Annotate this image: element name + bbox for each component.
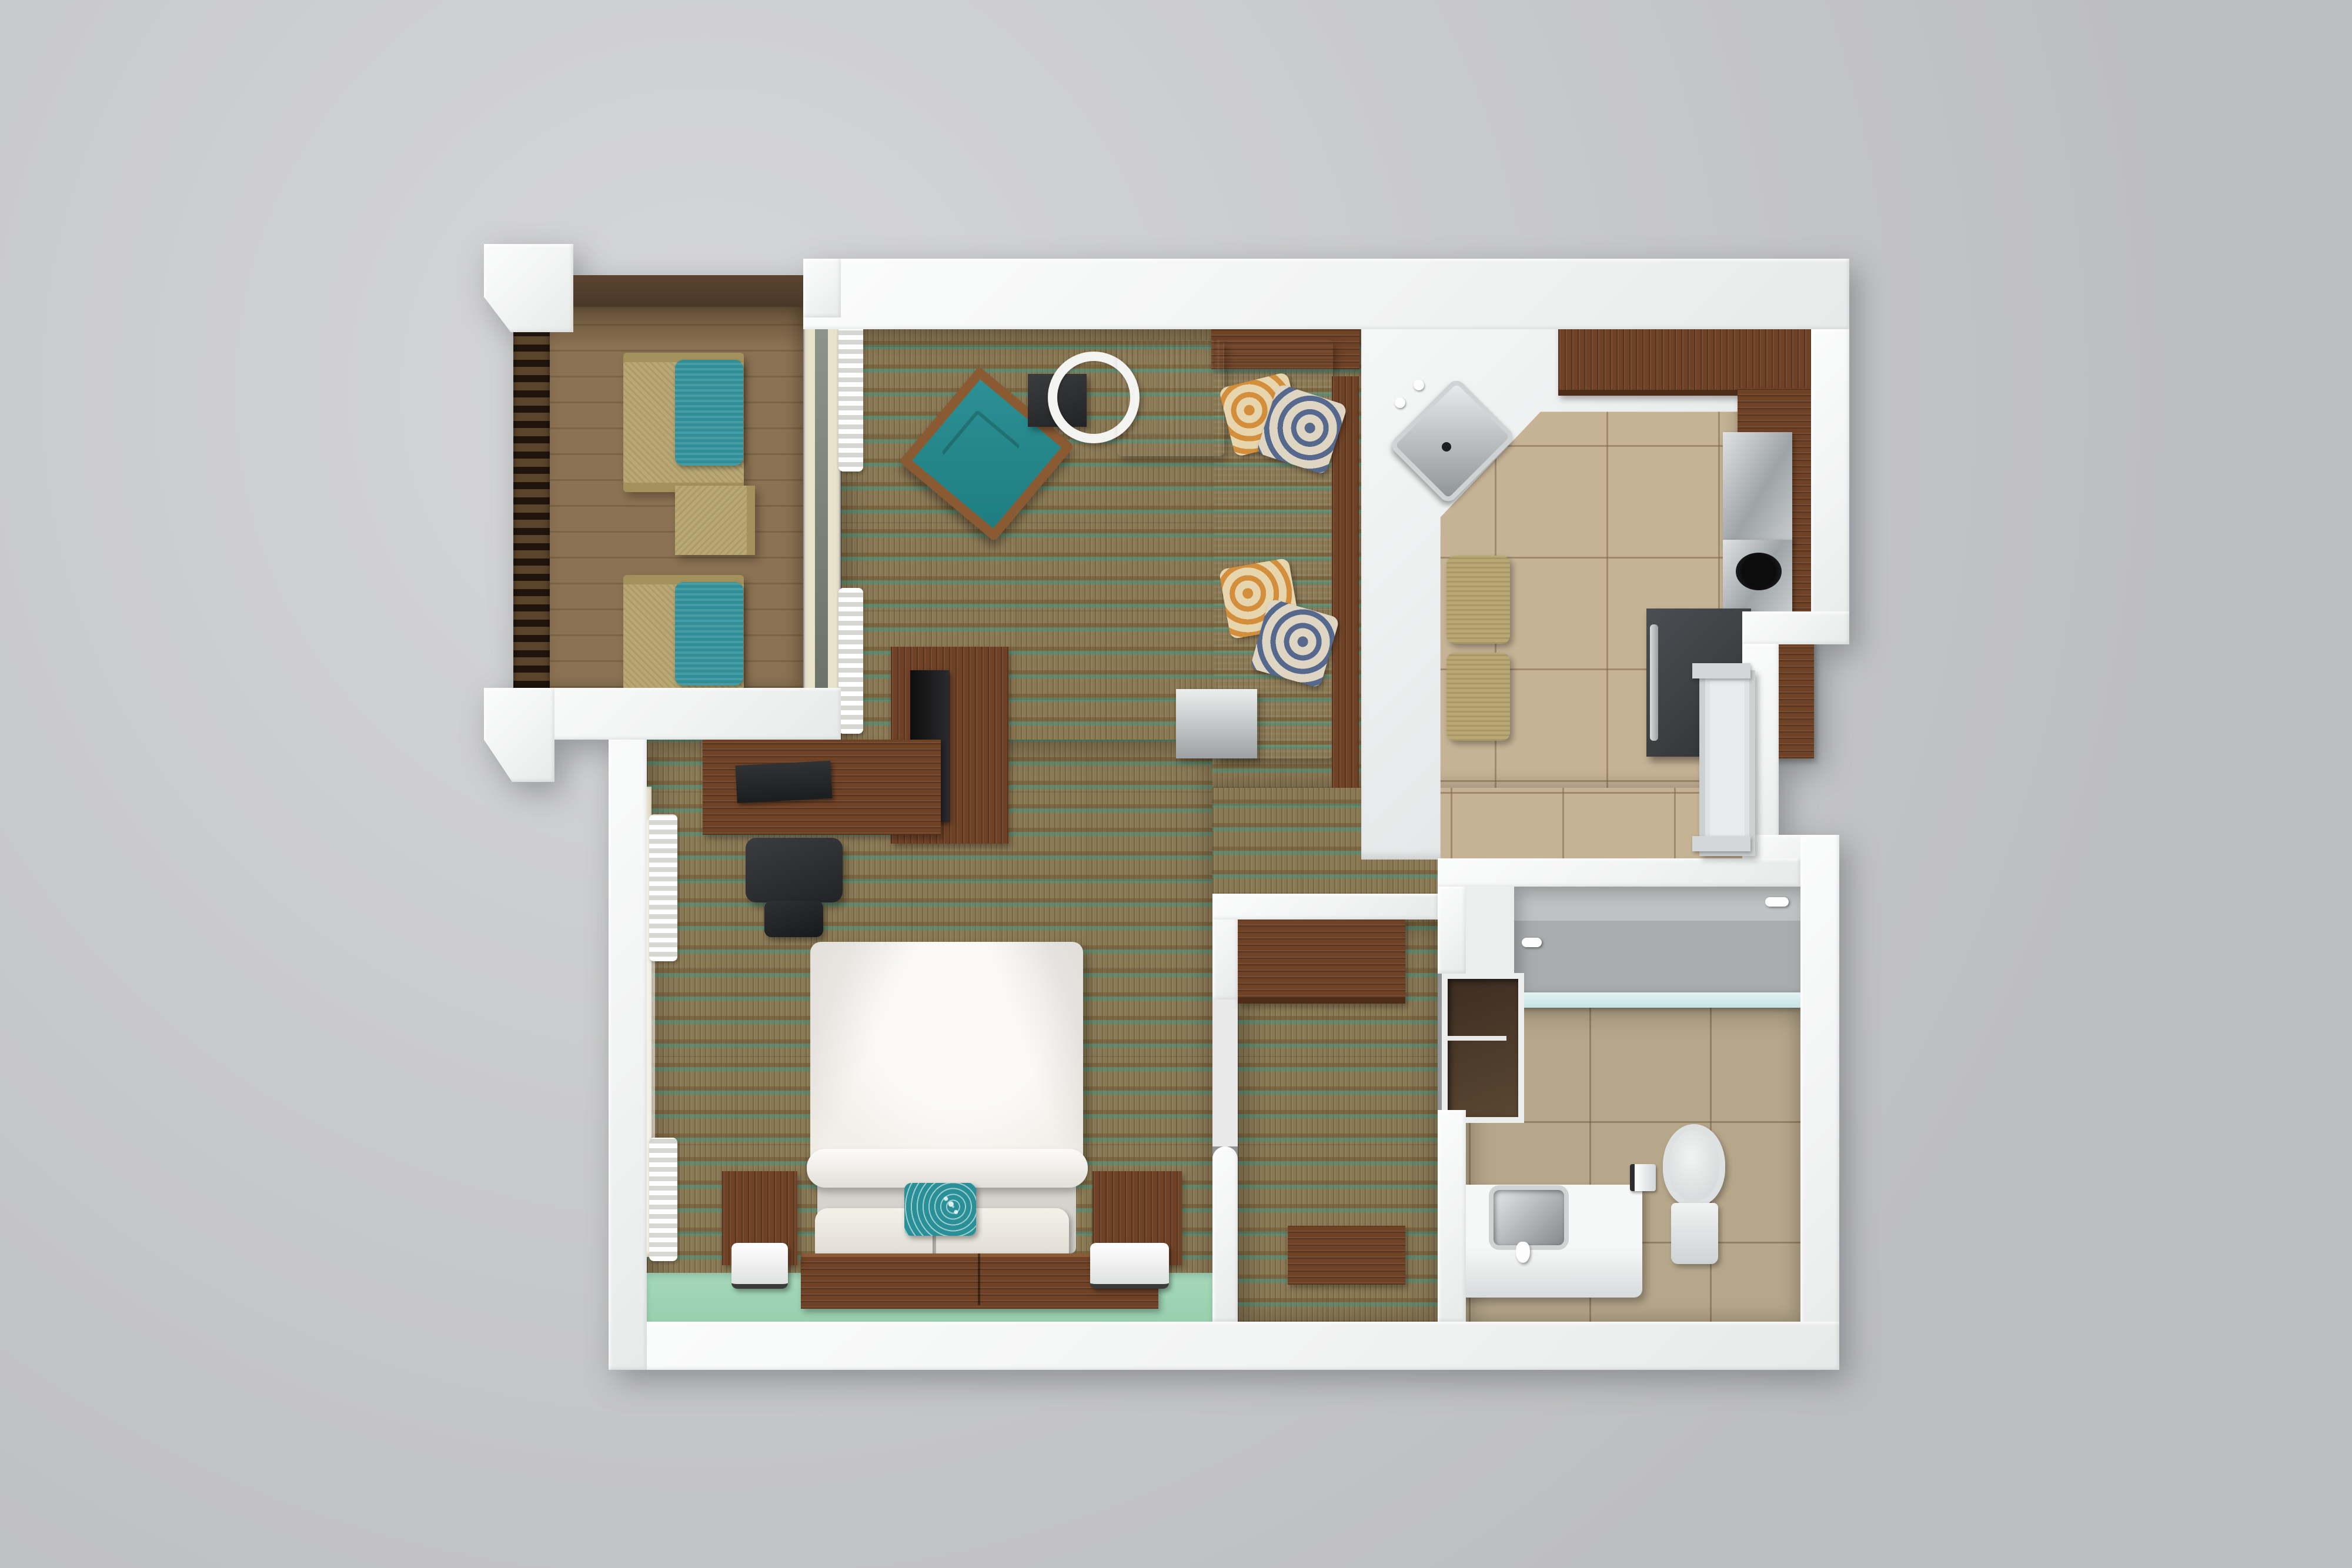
appliance-handle xyxy=(1650,624,1658,741)
closet-top-wall xyxy=(1212,894,1438,920)
shower-floor xyxy=(1514,887,1800,994)
accent-pillow xyxy=(904,1183,976,1236)
office-chair xyxy=(746,838,843,902)
balcony-railing xyxy=(513,306,550,688)
entry-door-rail xyxy=(1692,663,1750,678)
floor-plan xyxy=(0,0,2352,1568)
kitchen-faucet-handle xyxy=(1414,380,1424,390)
scene-background xyxy=(0,0,2352,1568)
balcony-roof-cap xyxy=(484,244,573,332)
entry-door-rail xyxy=(1692,836,1750,851)
kitchen-sink-drain xyxy=(1442,442,1451,452)
sofa-chaise xyxy=(1117,340,1224,456)
wall-top xyxy=(803,259,1849,329)
cooktop-burner xyxy=(1736,553,1782,590)
bed-duvet xyxy=(810,942,1083,1168)
table-lamp xyxy=(1090,1243,1169,1289)
bar-stool xyxy=(1446,556,1510,644)
counter-steel-section xyxy=(1723,432,1792,544)
vanity-sink xyxy=(1489,1185,1569,1250)
balcony-side-table xyxy=(675,486,755,555)
toilet-seat xyxy=(1663,1124,1725,1206)
living-window-curtain xyxy=(838,588,863,734)
toilet-paper-holder xyxy=(1630,1164,1656,1191)
storage-niche xyxy=(1442,973,1524,1123)
lounge-chair-cushion xyxy=(675,582,743,686)
office-chair-headrest xyxy=(764,901,823,937)
kitchen-faucet-handle xyxy=(1395,397,1405,408)
shower-valve xyxy=(1522,938,1542,947)
bed-duvet-fold xyxy=(807,1149,1088,1188)
balcony-window-wall xyxy=(803,259,841,317)
entry-door xyxy=(1699,670,1755,856)
shower-glass-screen xyxy=(1514,992,1800,1008)
bedroom-curtain xyxy=(649,1138,677,1261)
laptop xyxy=(735,761,832,803)
luggage-bench xyxy=(1288,1226,1405,1285)
balcony-corner-block xyxy=(484,688,554,782)
wall-right-upper xyxy=(1811,329,1849,644)
living-window-glass xyxy=(815,325,828,729)
niche-shelf xyxy=(1448,1036,1506,1041)
bedroom-curtain xyxy=(649,814,677,961)
toilet-tank xyxy=(1671,1203,1718,1264)
towel-hook xyxy=(1765,897,1789,907)
bar-stool xyxy=(1446,653,1510,741)
cube-side-table xyxy=(1176,689,1257,758)
closet-dresser xyxy=(1238,918,1405,1004)
bed-platform-seam xyxy=(978,1253,980,1305)
wall-left xyxy=(609,688,647,1370)
lounge-chair-cushion xyxy=(675,360,743,466)
wall-right-lower xyxy=(1800,835,1839,1370)
bathroom-left-wall xyxy=(1438,887,1466,974)
wall-entry-top xyxy=(1742,611,1849,644)
wall-bottom xyxy=(609,1322,1839,1370)
table-lamp xyxy=(731,1243,788,1289)
closet-wall-curved xyxy=(1212,1146,1238,1322)
living-window-curtain xyxy=(838,325,863,472)
closet-doorway-threshold xyxy=(1212,999,1238,1146)
vanity-faucet xyxy=(1516,1242,1530,1263)
bathroom-top-wall xyxy=(1438,858,1800,887)
bathroom-left-wall xyxy=(1438,1110,1466,1322)
